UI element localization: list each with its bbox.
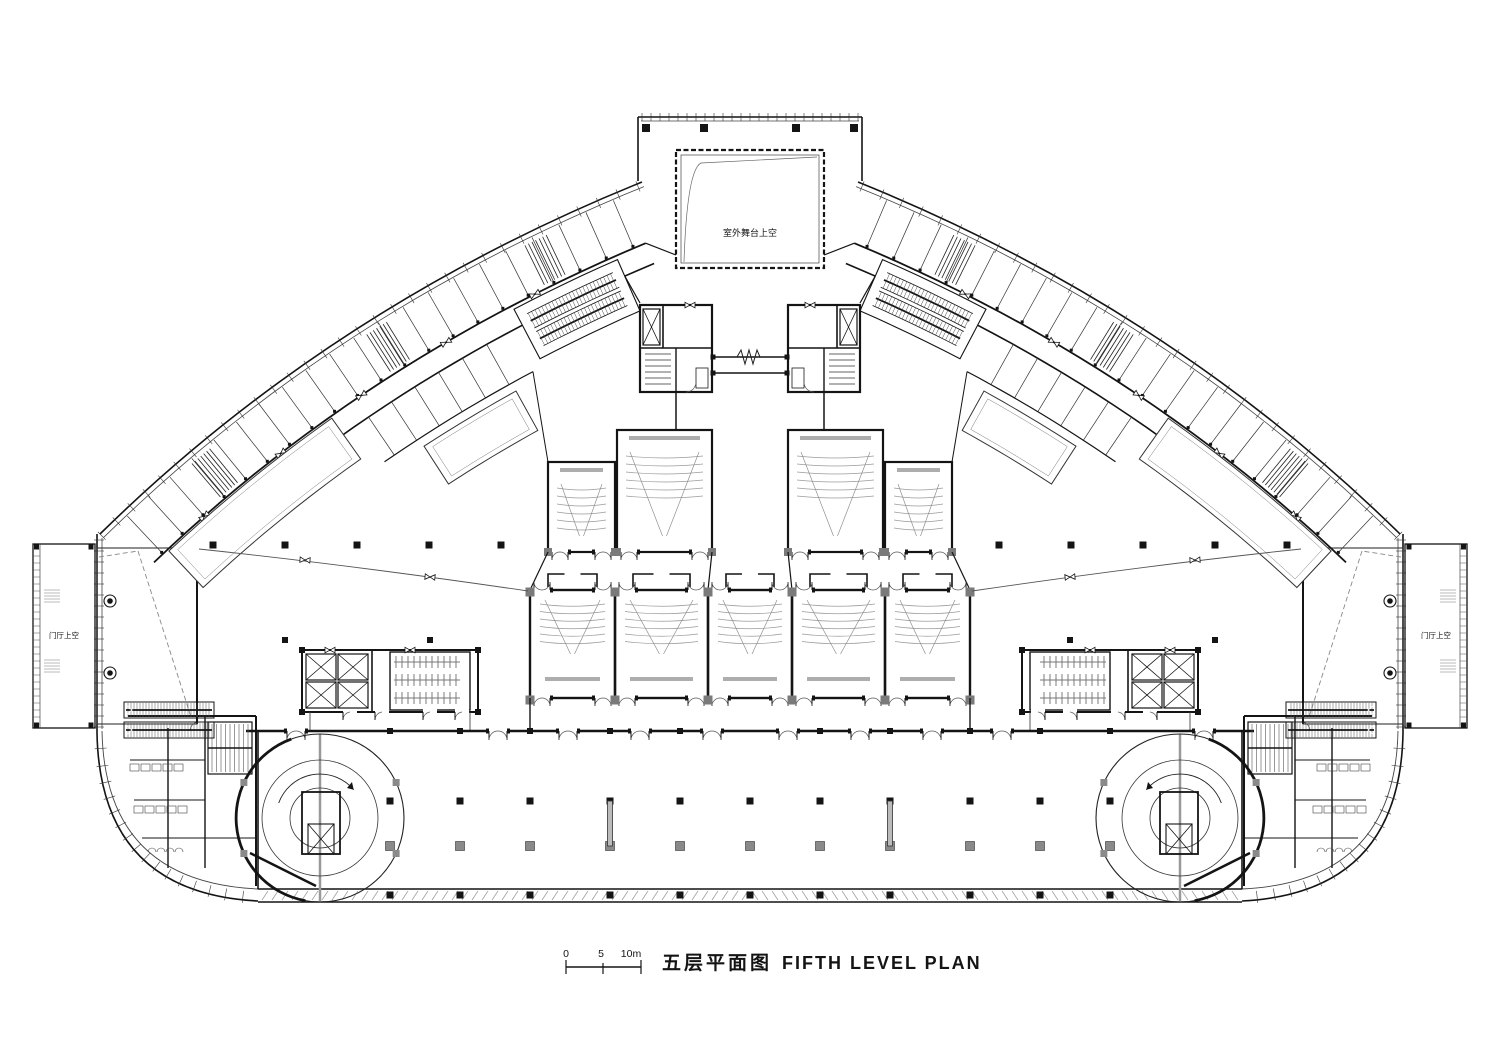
floor-plan-drawing: 室外舞台上空 门厅上空 门厅上空 0 5 10m 五层平面图 FIFTH LEV… [0, 0, 1500, 1060]
center-cinema-hall [704, 574, 797, 706]
upper-stair-elevator-core [640, 302, 712, 430]
lower-stair-elevator-core [299, 647, 481, 731]
link-bridge-expansion-joint [711, 350, 790, 376]
left-half [33, 181, 750, 903]
sheet-title-en: FIFTH LEVEL PLAN [782, 953, 982, 973]
scale-tick-5: 5 [598, 948, 604, 960]
drawing-sheet: 室外舞台上空 门厅上空 门厅上空 0 5 10m 五层平面图 FIFTH LEV… [0, 0, 1500, 1060]
upper-cinema-halls [530, 430, 716, 590]
central-cinema-halls [526, 574, 713, 731]
spiral-vehicle-ramp [236, 734, 404, 902]
roof-terrace-platform [638, 113, 862, 181]
sheet-title-cn: 五层平面图 [662, 952, 772, 974]
scale-bar: 0 5 10m [563, 948, 641, 974]
title-block: 五层平面图 FIFTH LEVEL PLAN [662, 952, 982, 974]
lower-terrace-columns [386, 798, 685, 899]
stage-void-label: 室外舞台上空 [723, 227, 777, 238]
scale-tick-0: 0 [563, 948, 569, 960]
lobby-void-label-left: 门厅上空 [49, 630, 79, 640]
escalator-pair [124, 702, 214, 738]
center-columns [746, 798, 755, 899]
lobby-void [97, 548, 197, 724]
stage-void-box [676, 150, 824, 268]
lobby-void-label-right: 门厅上空 [1421, 630, 1451, 640]
scale-tick-10m: 10m [621, 948, 642, 960]
right-half-mirror [750, 181, 1467, 903]
atrium-edge-and-columns [199, 542, 528, 644]
